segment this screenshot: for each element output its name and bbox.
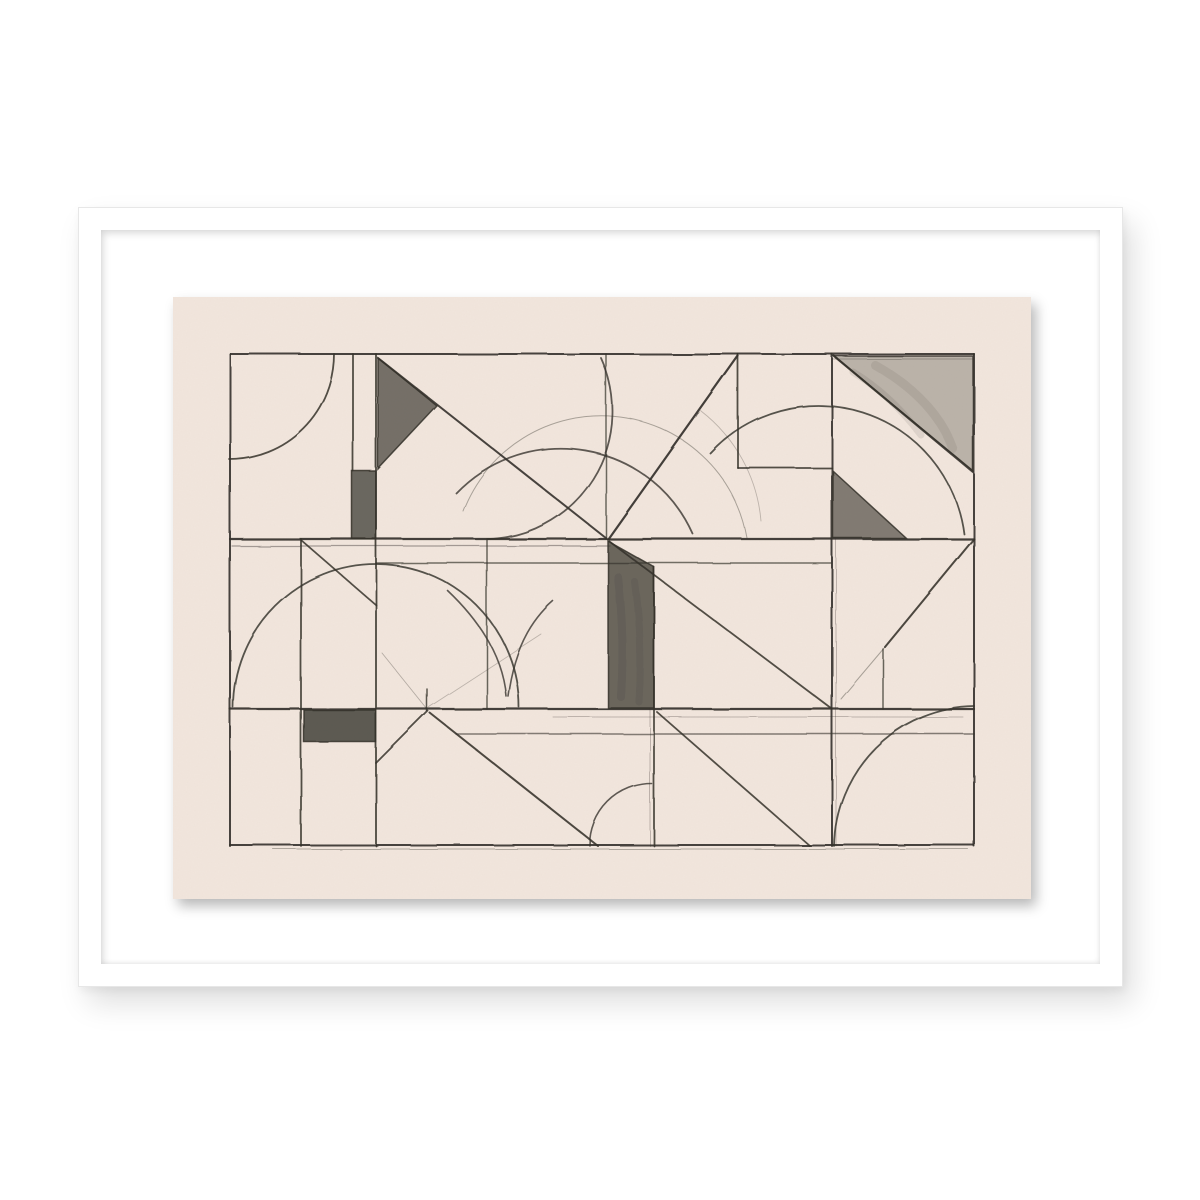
pencil-drawing — [173, 297, 1031, 899]
page-background: { "artwork": { "description": "Framed ab… — [0, 0, 1200, 1200]
pencil-arc — [618, 577, 622, 697]
shaded-shape — [304, 710, 376, 742]
mat-board — [101, 230, 1100, 964]
shaded-shape — [352, 471, 376, 539]
picture-frame — [78, 207, 1123, 987]
art-paper — [173, 297, 1031, 899]
shaded-shape — [608, 541, 654, 708]
